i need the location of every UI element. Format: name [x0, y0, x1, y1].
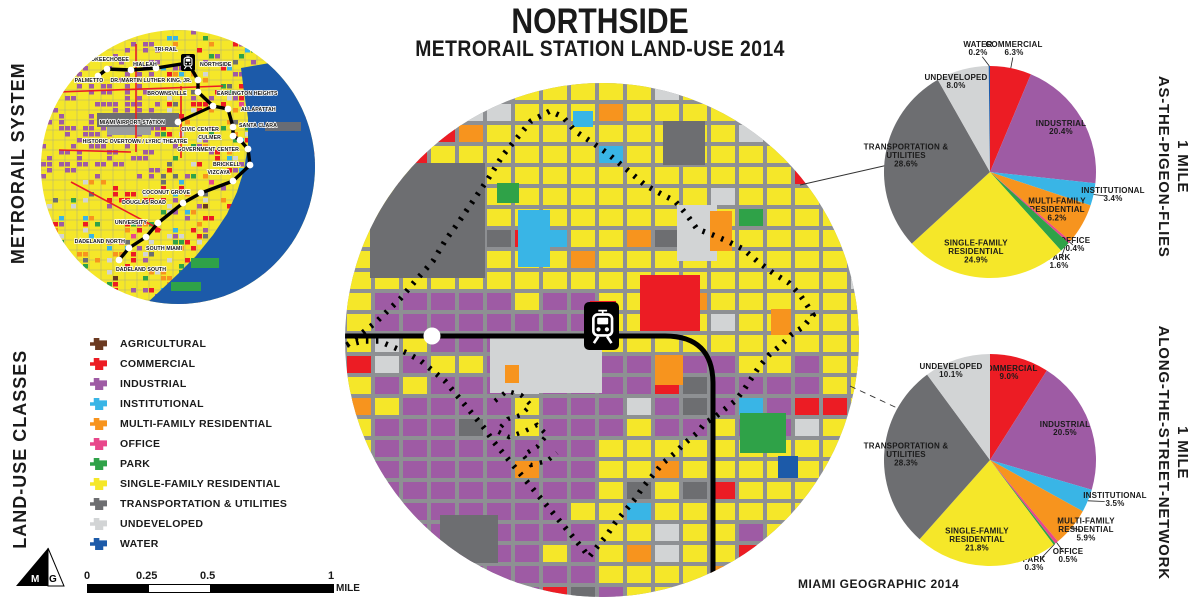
- landuse-patch: [573, 111, 593, 127]
- map-parcel: [113, 282, 118, 287]
- city-block: [375, 146, 399, 163]
- city-block: [599, 83, 623, 100]
- industrial-swatch-icon: [90, 378, 107, 390]
- city-block: [515, 104, 539, 121]
- map-graphic: INDUSTRIAL: [1040, 420, 1090, 429]
- legend-item-water: WATER: [90, 534, 320, 554]
- city-block: [543, 167, 567, 184]
- city-block: [851, 125, 859, 142]
- map-parcel: [191, 162, 196, 167]
- city-block: [515, 503, 539, 520]
- map-parcel: [59, 216, 64, 221]
- map-parcel: [137, 102, 142, 107]
- legend-label: TRANSPORTATION & UTILITIES: [120, 498, 287, 510]
- map-parcel: [239, 54, 244, 59]
- station-dot[interactable]: [198, 190, 205, 197]
- city-block: [655, 440, 679, 457]
- city-block: [823, 272, 847, 289]
- map-graphic: 20.4%: [1049, 127, 1073, 136]
- legend-label: UNDEVELOPED: [120, 518, 203, 530]
- map-parcel: [143, 156, 148, 161]
- city-block: [767, 566, 791, 583]
- pie-label: INDUSTRIAL20.5%: [1040, 420, 1090, 437]
- station-dot[interactable]: [155, 220, 162, 227]
- station-label: HIALEAH: [133, 62, 157, 68]
- city-block: [487, 104, 511, 121]
- station-dot[interactable]: [230, 178, 237, 185]
- pie-label-leader: [1072, 528, 1081, 531]
- city-block: [515, 440, 539, 457]
- pie-label-leader: [1088, 501, 1105, 502]
- map-parcel: [71, 144, 76, 149]
- pie-slice-commercial: [990, 66, 1031, 172]
- city-block: [767, 398, 791, 415]
- map-parcel: [47, 168, 52, 173]
- map-parcel: [113, 192, 118, 197]
- map-parcel: [113, 252, 118, 257]
- city-block: [795, 419, 819, 436]
- map-parcel: [125, 192, 130, 197]
- city-block: [711, 356, 735, 373]
- city-block: [851, 503, 859, 520]
- city-block: [375, 587, 399, 597]
- undeveloped-swatch-icon: [90, 518, 107, 530]
- city-block: [459, 461, 483, 478]
- city-block: [851, 587, 859, 597]
- map-parcel: [89, 114, 94, 119]
- city-block: [543, 587, 567, 597]
- station-dot[interactable]: [210, 103, 217, 110]
- station-dot[interactable]: [230, 124, 237, 131]
- city-block: [823, 335, 847, 352]
- station-dot[interactable]: [126, 245, 133, 252]
- city-block: [795, 524, 819, 541]
- map-parcel: [107, 282, 112, 287]
- map-parcel: [95, 132, 100, 137]
- map-parcel: [77, 72, 82, 77]
- city-block: [487, 125, 511, 142]
- city-block: [459, 125, 483, 142]
- coastal-park: [191, 258, 219, 268]
- city-block: [851, 398, 859, 415]
- city-block: [459, 419, 483, 436]
- map-graphic: OFFICE: [1060, 236, 1091, 245]
- city-block: [851, 545, 859, 562]
- city-block: [431, 356, 455, 373]
- metrorail-system-label: METRORAIL SYSTEM: [7, 33, 30, 293]
- pie-label: COMMERCIAL9.0%: [980, 364, 1037, 381]
- map-parcel: [83, 252, 88, 257]
- city-block: [655, 209, 679, 226]
- pie-slice-transportation: [884, 80, 990, 244]
- city-block: [543, 146, 567, 163]
- map-parcel: [131, 234, 136, 239]
- map-parcel: [95, 162, 100, 167]
- station-label: UNIVERSITY: [115, 220, 148, 226]
- map-parcel: [185, 120, 190, 125]
- city-block: [711, 293, 735, 310]
- city-block: [375, 167, 399, 184]
- station-dot[interactable]: [230, 133, 237, 140]
- city-block: [823, 209, 847, 226]
- city-block: [795, 440, 819, 457]
- city-block: [739, 272, 763, 289]
- city-block: [851, 377, 859, 394]
- city-block: [683, 377, 707, 394]
- map-parcel: [209, 96, 214, 101]
- map-parcel: [173, 174, 178, 179]
- city-block: [347, 356, 371, 373]
- city-block: [347, 167, 371, 184]
- map-parcel: [89, 216, 94, 221]
- city-block: [739, 251, 763, 268]
- city-block: [515, 524, 539, 541]
- city-block: [627, 167, 651, 184]
- legend-item-undeveloped: UNDEVELOPED: [90, 514, 320, 534]
- station-dot[interactable]: [195, 89, 202, 96]
- city-block: [543, 482, 567, 499]
- station-label: DOUGLAS ROAD: [122, 200, 166, 206]
- legend-item-industrial: INDUSTRIAL: [90, 374, 320, 394]
- city-block: [851, 209, 859, 226]
- legend-label: WATER: [120, 538, 159, 550]
- city-block: [459, 146, 483, 163]
- city-block: [851, 524, 859, 541]
- map-parcel: [161, 210, 166, 215]
- page-subtitle: METRORAIL STATION LAND-USE 2014: [415, 37, 785, 60]
- city-block: [599, 356, 623, 373]
- station-label: SOUTH MIAMI: [146, 246, 182, 252]
- station-dot[interactable]: [247, 162, 254, 169]
- city-block: [487, 314, 511, 331]
- map-graphic: 0.2%: [968, 48, 987, 57]
- city-block: [711, 83, 735, 100]
- city-block: [571, 440, 595, 457]
- pie-label: INDUSTRIAL20.4%: [1036, 119, 1086, 136]
- map-parcel: [155, 132, 160, 137]
- city-block: [823, 503, 847, 520]
- landuse-patch: [740, 413, 786, 453]
- map-parcel: [83, 132, 88, 137]
- city-block: [767, 356, 791, 373]
- pie-slice-industrial: [990, 371, 1096, 490]
- map-parcel: [149, 108, 154, 113]
- city-block: [711, 146, 735, 163]
- map-parcel: [89, 120, 94, 125]
- map-graphic: COMMERCIAL: [985, 40, 1042, 49]
- pigeon-flies-line1: 1 MILE: [1172, 7, 1191, 327]
- landuse-patch: [497, 183, 519, 203]
- city-block: [795, 356, 819, 373]
- map-graphic: INSTITUTIONAL: [1081, 186, 1144, 195]
- map-parcel: [41, 162, 46, 167]
- map-parcel: [197, 234, 202, 239]
- map-parcel: [173, 42, 178, 47]
- city-block: [543, 461, 567, 478]
- institutional-swatch-icon: [90, 398, 107, 410]
- station-label: COCONUT GROVE: [142, 190, 190, 196]
- city-block: [431, 398, 455, 415]
- pie-chart-pigeon: COMMERCIAL6.3%INDUSTRIAL20.4%INSTITUTION…: [864, 40, 1145, 278]
- city-block: [571, 209, 595, 226]
- map-parcel: [197, 162, 202, 167]
- city-block: [375, 104, 399, 121]
- city-block: [655, 587, 679, 597]
- pie-label: INSTITUTIONAL3.5%: [1083, 491, 1146, 508]
- map-parcel: [143, 48, 148, 53]
- map-parcel: [275, 264, 280, 269]
- map-graphic: TRANSPORTATION &: [864, 143, 949, 152]
- city-block: [571, 188, 595, 205]
- map-parcel: [65, 168, 70, 173]
- metrorail-system-map[interactable]: PALMETTOOKEECHOBEEHIALEAHTRI-RAILNORTHSI…: [41, 30, 315, 304]
- city-block: [795, 167, 819, 184]
- city-block: [599, 167, 623, 184]
- city-block: [655, 545, 679, 562]
- map-parcel: [221, 102, 226, 107]
- legend-item-agricultural: AGRICULTURAL: [90, 334, 320, 354]
- pie-slice-single_family: [912, 172, 1061, 278]
- map-parcel: [131, 252, 136, 257]
- map-parcel: [203, 204, 208, 209]
- city-block: [515, 272, 539, 289]
- city-block: [627, 419, 651, 436]
- city-block: [515, 146, 539, 163]
- pie-slice-office: [990, 460, 1058, 544]
- landuse-patch: [370, 163, 485, 278]
- city-block: [487, 209, 511, 226]
- city-block: [767, 545, 791, 562]
- city-block: [571, 125, 595, 142]
- city-block: [431, 104, 455, 121]
- city-block: [823, 188, 847, 205]
- city-block: [795, 545, 819, 562]
- city-block: [347, 104, 371, 121]
- map-parcel: [83, 126, 88, 131]
- station-dot[interactable]: [245, 146, 252, 153]
- city-block: [739, 314, 763, 331]
- city-block: [627, 587, 651, 597]
- city-block: [627, 188, 651, 205]
- map-parcel: [197, 240, 202, 245]
- pie-label-leader: [982, 57, 989, 66]
- station-label: DADELAND SOUTH: [116, 267, 166, 273]
- map-parcel: [83, 258, 88, 263]
- landuse-patch: [440, 515, 498, 563]
- station-dot[interactable]: [143, 234, 150, 241]
- city-block: [487, 167, 511, 184]
- map-parcel: [161, 180, 166, 185]
- city-block: [403, 314, 427, 331]
- city-block: [739, 398, 763, 415]
- pie-slice-industrial: [990, 74, 1096, 183]
- city-block: [795, 503, 819, 520]
- city-block: [347, 419, 371, 436]
- map-parcel: [167, 204, 172, 209]
- station-label: NORTHSIDE: [200, 62, 232, 68]
- city-block: [851, 83, 859, 100]
- map-graphic: COMMERCIAL: [980, 364, 1037, 373]
- city-block: [739, 356, 763, 373]
- scale-tick-1: 1: [328, 570, 334, 582]
- station-dot[interactable]: [225, 106, 232, 113]
- map-parcel: [185, 240, 190, 245]
- city-block: [599, 377, 623, 394]
- map-graphic: PARK: [1048, 253, 1071, 262]
- map-parcel: [137, 96, 142, 101]
- city-block: [655, 503, 679, 520]
- city-block: [739, 209, 763, 226]
- pie-label-leader: [1070, 242, 1073, 245]
- map-parcel: [233, 168, 238, 173]
- city-block: [347, 293, 371, 310]
- city-block: [851, 314, 859, 331]
- map-parcel: [65, 162, 70, 167]
- pie-label-leader: [1011, 58, 1013, 69]
- map-parcel: [167, 108, 172, 113]
- landuse-patch: [771, 309, 791, 335]
- map-parcel: [83, 222, 88, 227]
- map-parcel: [113, 276, 118, 281]
- city-block: [767, 587, 791, 597]
- city-block: [627, 251, 651, 268]
- city-block: [683, 482, 707, 499]
- city-block: [375, 503, 399, 520]
- city-block: [403, 293, 427, 310]
- pie-label-leader: [1094, 195, 1106, 197]
- miami-geographic-logo: M G: [10, 540, 70, 592]
- map-parcel: [173, 198, 178, 203]
- map-parcel: [209, 54, 214, 59]
- map-parcel: [47, 156, 52, 161]
- city-block: [487, 482, 511, 499]
- city-block: [739, 524, 763, 541]
- city-block: [767, 83, 791, 100]
- city-block: [459, 482, 483, 499]
- city-block: [515, 566, 539, 583]
- city-block: [711, 188, 735, 205]
- city-block: [543, 104, 567, 121]
- city-block: [403, 146, 427, 163]
- city-block: [655, 188, 679, 205]
- northside-landuse-map[interactable]: [345, 83, 859, 597]
- map-parcel: [125, 96, 130, 101]
- landuse-map-graphics: [345, 83, 859, 597]
- pigeon-flies-label: 1 MILE AS-THE-PIGEON-FLIES: [1153, 7, 1191, 327]
- map-graphic: [597, 318, 608, 325]
- city-block: [459, 377, 483, 394]
- map-parcel: [137, 84, 142, 89]
- map-graphic: SINGLE-FAMILY: [945, 527, 1009, 536]
- city-block: [375, 398, 399, 415]
- city-block: [515, 398, 539, 415]
- city-block: [823, 377, 847, 394]
- city-block: [851, 335, 859, 352]
- city-block: [459, 356, 483, 373]
- city-block: [767, 251, 791, 268]
- map-parcel: [125, 228, 130, 233]
- city-block: [543, 314, 567, 331]
- office-swatch-icon: [90, 438, 107, 450]
- map-parcel: [137, 108, 142, 113]
- map-parcel: [179, 234, 184, 239]
- city-block: [767, 167, 791, 184]
- city-block: [487, 293, 511, 310]
- pie-slice-institutional: [990, 460, 1092, 511]
- map-parcel: [221, 126, 226, 131]
- city-block: [431, 83, 455, 100]
- map-parcel: [191, 174, 196, 179]
- city-block: [823, 146, 847, 163]
- city-block: [795, 272, 819, 289]
- city-block: [571, 272, 595, 289]
- city-block: [403, 83, 427, 100]
- station-dot[interactable]: [175, 119, 182, 126]
- station-label: GOVERNMENT CENTER: [177, 147, 239, 153]
- station-label: SANTA CLARA: [239, 123, 277, 129]
- water-swatch-icon: [90, 538, 107, 550]
- map-parcel: [209, 42, 214, 47]
- city-block: [571, 566, 595, 583]
- city-block: [459, 566, 483, 583]
- city-block: [851, 104, 859, 121]
- city-block: [823, 293, 847, 310]
- map-parcel: [191, 210, 196, 215]
- map-graphic: 9.0%: [999, 372, 1018, 381]
- city-block: [543, 293, 567, 310]
- city-block: [403, 545, 427, 562]
- station-dot[interactable]: [180, 200, 187, 207]
- pie-label: SINGLE-FAMILYRESIDENTIAL21.8%: [945, 527, 1009, 553]
- city-block: [543, 125, 567, 142]
- city-block: [739, 482, 763, 499]
- station-label: CULMER: [198, 135, 221, 141]
- city-block: [431, 419, 455, 436]
- city-block: [571, 503, 595, 520]
- station-dot[interactable]: [104, 66, 111, 73]
- map-graphic: 3.4%: [1103, 194, 1122, 203]
- city-block: [823, 566, 847, 583]
- scale-bar: 0 0.25 0.5 1 MILE: [84, 570, 374, 600]
- city-block: [655, 251, 679, 268]
- map-parcel: [143, 276, 148, 281]
- station-label: MIAMI AIRPORT STATION: [100, 120, 166, 126]
- map-parcel: [185, 174, 190, 179]
- city-block: [403, 587, 427, 597]
- city-block: [347, 251, 371, 268]
- map-parcel: [59, 222, 64, 227]
- map-parcel: [107, 156, 112, 161]
- station-dot[interactable]: [195, 77, 202, 84]
- city-block: [375, 125, 399, 142]
- pie-label: OFFICE0.4%: [1060, 236, 1091, 253]
- map-graphic: 21.8%: [965, 543, 989, 552]
- station-dot[interactable]: [116, 257, 123, 264]
- map-parcel: [41, 144, 46, 149]
- map-parcel: [131, 192, 136, 197]
- city-block: [599, 398, 623, 415]
- map-parcel: [203, 234, 208, 239]
- pie-label: OFFICE0.5%: [1053, 547, 1084, 564]
- pie-slice-water: [989, 66, 990, 172]
- city-block: [487, 230, 511, 247]
- city-block: [403, 566, 427, 583]
- scale-tick-025: 0.25: [136, 570, 157, 582]
- city-block: [795, 146, 819, 163]
- map-parcel: [161, 132, 166, 137]
- station-dot[interactable]: [237, 137, 244, 144]
- map-parcel: [215, 156, 220, 161]
